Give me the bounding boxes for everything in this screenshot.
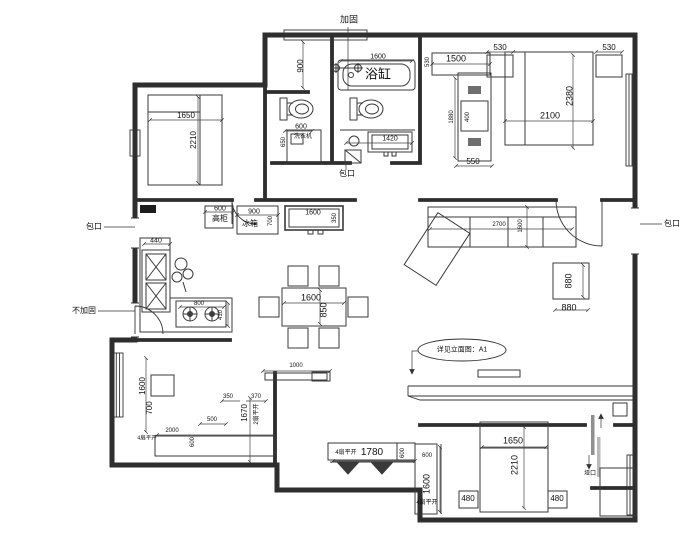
dim-wardrobe-1880: 1880 <box>449 110 455 123</box>
door-4leaf-mid-label: 4扇平开 <box>335 450 356 456</box>
bathtub-label: 浴缸 <box>365 68 391 81</box>
dim-coffee-880v: 880 <box>565 273 574 288</box>
note-baokou-left: 包口 <box>86 223 102 231</box>
dim-entry-cab-350: 350 <box>332 213 338 223</box>
fridge-label: 冰箱 <box>242 220 258 228</box>
toilet-1 <box>280 98 313 120</box>
folding-door-icon-2 <box>372 463 392 474</box>
floor-plan: 加固9001600浴缸600洗衣机6501420包口16502210530150… <box>0 0 695 545</box>
dim-closet-1500: 1500 <box>446 55 466 64</box>
door-2leaf-label: 2扇平开 <box>254 403 260 424</box>
toilet-2 <box>350 98 383 120</box>
dim-bl-350: 350 <box>223 394 233 400</box>
dim-washer-600: 600 <box>295 124 307 131</box>
dim-stove-800: 800 <box>194 301 204 307</box>
dim-desk-700: 700 <box>146 401 154 414</box>
note-yakou: 垭口 <box>584 471 596 477</box>
note-baokou-right: 包口 <box>664 220 680 228</box>
dim-washer-650: 650 <box>281 137 287 147</box>
opening-left-baokou <box>131 218 139 248</box>
dim-cabinet-600: 600 <box>214 206 226 213</box>
dim-br-strip-1600: 1600 <box>423 474 432 494</box>
tv-wall <box>408 370 635 400</box>
wall-openings <box>131 208 639 337</box>
dresser-br <box>600 403 636 516</box>
dim-desk-1600: 1600 <box>139 377 147 395</box>
door-4leaf-bl-label: 4扇平开 <box>137 436 157 442</box>
dim-sofa-2700: 2700 <box>492 222 505 228</box>
elevation-note-bubble <box>412 339 506 374</box>
note-baokou-mid: 包口 <box>339 170 355 178</box>
window-bathroom-top <box>284 30 367 40</box>
dim-fridge-900: 900 <box>248 209 260 216</box>
dim-fridge-700: 700 <box>268 216 274 226</box>
washer-label: 洗衣机 <box>294 134 312 140</box>
wardrobe-bl <box>155 436 275 456</box>
note-elevation: 详见立面图：A1 <box>437 347 488 354</box>
dining-table <box>259 266 368 348</box>
desk-bl <box>151 375 174 396</box>
dim-bed-br-1650: 1650 <box>503 437 523 446</box>
interior-walls <box>112 35 635 488</box>
dim-bl-370: 370 <box>251 394 261 400</box>
note-no-reinforce: 不加固 <box>72 307 96 315</box>
dim-nightstand-480r: 480 <box>550 495 563 503</box>
nightstand-tr-right <box>596 55 622 77</box>
dim-bed-tr-2380: 2380 <box>566 86 575 106</box>
dim-table-1600: 1600 <box>301 294 321 303</box>
dim-corridor-900: 900 <box>297 59 305 72</box>
floorplan-linework <box>0 0 695 545</box>
bed-top-left <box>148 95 222 185</box>
bed-top-right <box>505 52 593 145</box>
sliding-door <box>589 414 601 477</box>
vanity-sink <box>340 130 415 163</box>
dim-closet-530v: 530 <box>425 57 431 67</box>
tall-cabinet-label: 高柜 <box>212 215 228 223</box>
kitchen-sink <box>142 250 170 312</box>
plant-icon <box>172 258 193 292</box>
dim-wardrobe-400: 400 <box>465 112 471 122</box>
folding-door-icon-1 <box>338 463 358 474</box>
dim-bed-tl-1650: 1650 <box>177 112 195 120</box>
note-leaders <box>98 165 662 311</box>
dim-bl-500: 500 <box>207 417 217 423</box>
sofa <box>404 207 576 285</box>
dim-coffee-880h: 880 <box>561 304 576 313</box>
dim-bathtub-1600: 1600 <box>370 54 386 61</box>
dim-bl-1670: 1670 <box>241 404 249 422</box>
opening-right-baokou <box>631 208 639 254</box>
dim-vanity-1420: 1420 <box>382 136 398 143</box>
dim-sink-440: 440 <box>150 238 162 245</box>
dim-mid-closet-600: 600 <box>400 448 406 458</box>
door-4leaf-br-label: 4扇平开 <box>416 500 437 506</box>
dim-wardrobe-550: 550 <box>466 158 479 166</box>
note-reinforce: 加固 <box>340 16 358 25</box>
door-arc-kitchen <box>135 306 163 334</box>
chaise-lounge <box>404 213 470 286</box>
wardrobe-column <box>458 73 491 161</box>
dim-br-strip-600: 600 <box>422 453 432 459</box>
dim-bed-tl-2210: 2210 <box>190 131 198 149</box>
dim-bed-br-2210: 2210 <box>511 455 520 475</box>
dim-bed-tr-2100: 2100 <box>540 112 560 121</box>
dim-nightstand-480l: 480 <box>461 495 474 503</box>
dim-wardrobe-bl-2000: 2000 <box>165 428 178 434</box>
dim-shelf-1000: 1000 <box>289 363 302 369</box>
dim-stove-410: 410 <box>218 310 224 320</box>
dim-entry-cab-1600: 1600 <box>305 210 321 217</box>
gas-meter-marker <box>140 205 156 213</box>
dim-sofa-1600: 1600 <box>518 219 524 232</box>
shower-fixtures <box>331 63 363 73</box>
dim-mid-closet-1780: 1780 <box>361 448 383 458</box>
dim-nightstand-530r: 530 <box>602 44 615 52</box>
dim-table-850: 850 <box>320 302 329 317</box>
dim-wardrobe-bl-600: 600 <box>190 437 196 447</box>
dim-nightstand-530l: 530 <box>493 44 506 52</box>
